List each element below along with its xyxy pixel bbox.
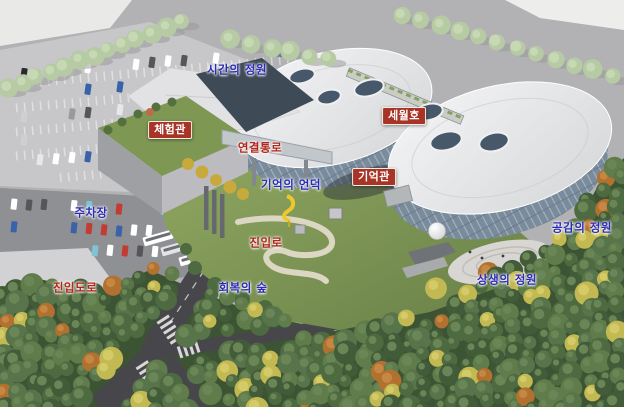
label-access-road: 진입로: [249, 237, 282, 249]
label-garden-of-time: 시간의 정원: [207, 64, 267, 76]
label-experience-hall: 체험관: [148, 121, 192, 139]
label-forest-of-recovery: 회복의 숲: [219, 282, 268, 294]
label-connecting-passage: 연결통로: [238, 142, 282, 154]
label-parking-lot: 주차장: [74, 207, 107, 219]
label-sewol-ferry: 세월호: [382, 107, 426, 125]
label-garden-of-empathy: 공감의 정원: [552, 222, 612, 234]
label-entry-road: 진입도로: [53, 282, 97, 294]
label-layer: 시간의 정원체험관세월호연결통로기억관기억의 언덕주차장진입로회복의 숲진입도로…: [0, 0, 624, 407]
aerial-site-rendering: 시간의 정원체험관세월호연결통로기억관기억의 언덕주차장진입로회복의 숲진입도로…: [0, 0, 624, 407]
label-garden-of-coexistence: 상생의 정원: [477, 274, 537, 286]
label-hill-of-memory: 기억의 언덕: [261, 179, 321, 191]
label-memorial-hall: 기억관: [352, 168, 396, 186]
